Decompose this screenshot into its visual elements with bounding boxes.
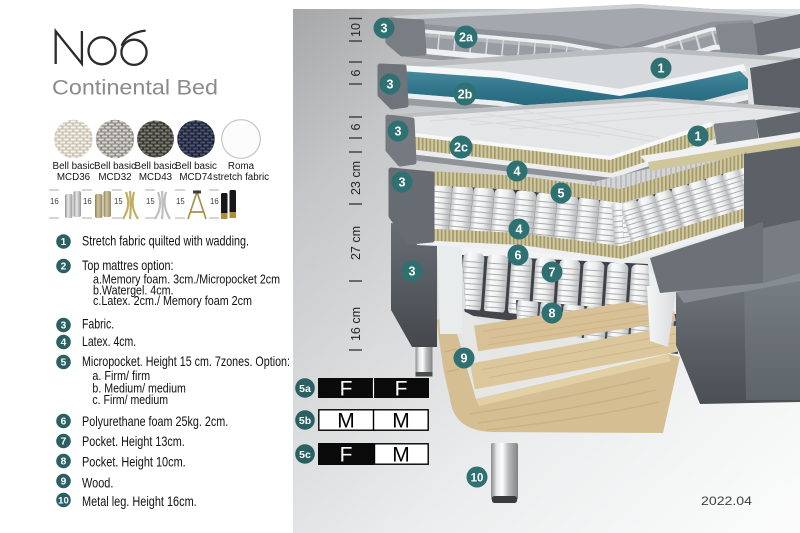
svg-text:3: 3	[61, 321, 67, 332]
svg-text:M: M	[392, 444, 410, 467]
svg-text:4: 4	[514, 165, 521, 179]
svg-text:15: 15	[146, 197, 155, 206]
svg-text:1: 1	[658, 62, 665, 76]
svg-text:8: 8	[61, 457, 67, 468]
svg-text:5a: 5a	[299, 383, 311, 395]
svg-text:10: 10	[349, 23, 363, 37]
svg-text:3: 3	[381, 22, 388, 36]
svg-text:5b: 5b	[299, 415, 311, 427]
svg-text:3: 3	[399, 176, 406, 190]
svg-text:23 cm: 23 cm	[349, 161, 363, 195]
svg-text:8: 8	[549, 307, 556, 321]
svg-text:2a: 2a	[459, 31, 474, 45]
svg-text:F: F	[340, 378, 353, 401]
svg-text:1: 1	[61, 237, 67, 248]
svg-text:Bell basic: Bell basic	[94, 161, 136, 172]
svg-text:Top mattres option:: Top mattres option:	[82, 258, 174, 273]
svg-text:16: 16	[50, 197, 59, 206]
svg-text:10: 10	[471, 473, 484, 485]
svg-text:c. Firm/ medium: c. Firm/ medium	[92, 393, 168, 407]
svg-text:15: 15	[114, 197, 123, 206]
svg-text:6: 6	[349, 69, 363, 76]
svg-text:5c: 5c	[299, 449, 311, 461]
svg-text:Stretch fabric quilted with wa: Stretch fabric quilted with wadding.	[82, 234, 249, 249]
svg-text:Pocket. Height 13cm.: Pocket. Height 13cm.	[82, 434, 185, 449]
svg-text:16: 16	[210, 197, 219, 206]
svg-text:4: 4	[516, 223, 523, 237]
svg-text:MCD32: MCD32	[98, 172, 131, 183]
svg-text:15: 15	[176, 197, 185, 206]
svg-text:6: 6	[515, 249, 522, 263]
svg-text:3: 3	[409, 265, 416, 279]
svg-text:10: 10	[58, 496, 69, 507]
svg-text:Fabric.: Fabric.	[82, 317, 114, 332]
svg-text:16 cm: 16 cm	[349, 307, 363, 341]
svg-text:16: 16	[83, 197, 92, 206]
svg-text:7: 7	[61, 437, 67, 448]
svg-text:6: 6	[349, 123, 363, 130]
svg-text:2b: 2b	[458, 88, 473, 102]
svg-text:F: F	[340, 444, 353, 467]
svg-text:5: 5	[61, 358, 67, 369]
svg-text:Roma: Roma	[228, 161, 255, 172]
svg-text:Pocket. Height 10cm.: Pocket. Height 10cm.	[82, 455, 186, 470]
svg-text:Bell basic: Bell basic	[53, 161, 95, 172]
svg-text:M: M	[337, 410, 355, 433]
svg-text:2022.04: 2022.04	[701, 496, 753, 508]
svg-text:Bell basic: Bell basic	[175, 161, 217, 172]
svg-text:Polyurethane foam 25kg. 2cm.: Polyurethane foam 25kg. 2cm.	[82, 414, 228, 429]
svg-text:Bell basic: Bell basic	[135, 161, 177, 172]
svg-text:Continental Bed: Continental Bed	[52, 76, 218, 100]
svg-text:Micropocket. Height 15 cm. 7zo: Micropocket. Height 15 cm. 7zones. Optio…	[82, 354, 290, 369]
svg-text:stretch fabric: stretch fabric	[213, 172, 269, 183]
svg-text:F: F	[395, 378, 408, 401]
svg-text:6: 6	[61, 417, 67, 428]
svg-text:1: 1	[695, 130, 702, 144]
svg-text:Metal leg. Height 16cm.: Metal leg. Height 16cm.	[82, 494, 197, 509]
svg-text:M: M	[392, 410, 410, 433]
svg-text:3: 3	[395, 125, 402, 139]
svg-text:2: 2	[61, 262, 67, 273]
svg-text:MCD43: MCD43	[139, 172, 173, 183]
svg-text:9: 9	[461, 352, 468, 366]
svg-text:MCD36: MCD36	[57, 172, 91, 183]
svg-text:Wood.: Wood.	[82, 475, 113, 490]
svg-text:5: 5	[558, 187, 565, 201]
svg-text:7: 7	[549, 266, 556, 280]
svg-text:MCD74: MCD74	[179, 172, 213, 183]
svg-text:c.Latex. 2cm./ Memory foam 2cm: c.Latex. 2cm./ Memory foam 2cm	[93, 294, 252, 308]
svg-text:27 cm: 27 cm	[349, 226, 363, 260]
svg-text:4: 4	[61, 338, 67, 349]
svg-text:9: 9	[61, 477, 67, 488]
svg-text:3: 3	[387, 78, 394, 92]
svg-text:Latex. 4cm.: Latex. 4cm.	[82, 334, 136, 349]
svg-text:2c: 2c	[454, 141, 468, 155]
